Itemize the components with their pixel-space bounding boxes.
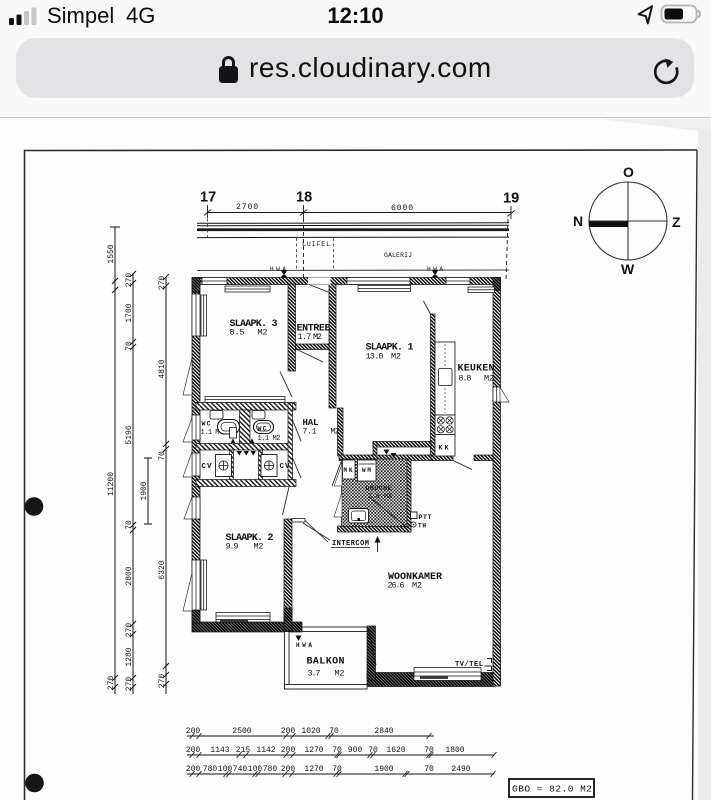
svg-text:270: 270 (125, 273, 134, 288)
svg-text:18: 18 (296, 190, 312, 206)
svg-text:WC: WC (202, 421, 211, 428)
svg-text:70: 70 (329, 727, 339, 736)
svg-text:70: 70 (368, 746, 378, 755)
svg-text:100: 100 (218, 765, 233, 774)
svg-text:270: 270 (107, 676, 116, 691)
svg-text:TV/TEL: TV/TEL (455, 661, 483, 669)
svg-text:70: 70 (158, 451, 167, 461)
svg-text:1.1 M: 1.1 M (201, 429, 220, 437)
svg-text:1270: 1270 (304, 765, 323, 774)
svg-text:1900: 1900 (374, 765, 393, 774)
svg-text:200: 200 (281, 746, 296, 755)
svg-text:5196: 5196 (125, 425, 134, 444)
svg-text:200: 200 (186, 765, 201, 774)
svg-text:1.1 M2: 1.1 M2 (258, 435, 281, 443)
svg-text:CV: CV (280, 463, 290, 471)
svg-text:70: 70 (424, 746, 434, 755)
svg-text:3.7: 3.7 (308, 669, 321, 679)
svg-text:2490: 2490 (451, 765, 470, 774)
svg-text:M2: M2 (313, 332, 322, 342)
svg-text:4810: 4810 (158, 359, 167, 378)
svg-text:DOUCHE: DOUCHE (366, 485, 392, 492)
svg-text:HWA: HWA (296, 642, 312, 649)
svg-text:1800: 1800 (445, 746, 464, 755)
svg-text:9.9: 9.9 (226, 542, 239, 552)
svg-text:70: 70 (332, 746, 342, 755)
svg-text:1620: 1620 (386, 746, 405, 755)
svg-text:2840: 2840 (374, 727, 393, 736)
svg-text:1142: 1142 (256, 746, 275, 755)
svg-text:7.1: 7.1 (303, 428, 317, 437)
svg-text:MK: MK (344, 467, 353, 474)
svg-text:M2: M2 (331, 428, 340, 437)
svg-text:N: N (573, 213, 583, 229)
svg-text:70: 70 (125, 341, 134, 351)
svg-text:26.6: 26.6 (388, 581, 405, 591)
svg-text:WM: WM (362, 467, 371, 474)
svg-text:6000: 6000 (391, 204, 413, 213)
svg-text:M2: M2 (258, 328, 268, 338)
svg-text:780: 780 (203, 765, 218, 774)
svg-text:CV: CV (202, 463, 212, 471)
svg-text:HAL: HAL (303, 418, 319, 428)
svg-text:200: 200 (281, 765, 296, 774)
svg-text:W: W (621, 261, 635, 277)
svg-text:780: 780 (263, 765, 278, 774)
svg-text:270: 270 (158, 674, 167, 689)
svg-text:1700: 1700 (125, 303, 134, 322)
svg-text:1143: 1143 (210, 746, 229, 755)
svg-text:6320: 6320 (158, 560, 167, 579)
svg-text:70: 70 (424, 765, 434, 774)
svg-text:1550: 1550 (107, 244, 116, 263)
svg-text:270: 270 (125, 677, 134, 692)
svg-text:270: 270 (158, 276, 167, 291)
svg-text:TH: TH (418, 523, 426, 530)
svg-text:1020: 1020 (301, 727, 320, 736)
svg-text:INTERCOM: INTERCOM (332, 540, 369, 548)
svg-text:8.5: 8.5 (230, 328, 245, 338)
svg-text:8.8: 8.8 (459, 374, 472, 384)
svg-text:M2: M2 (484, 374, 494, 384)
svg-text:Z: Z (672, 214, 681, 230)
svg-text:200: 200 (281, 727, 296, 736)
svg-text:900: 900 (348, 746, 363, 755)
svg-text:13.0: 13.0 (366, 352, 384, 362)
svg-text:WC: WC (258, 426, 267, 433)
svg-text:740: 740 (233, 765, 248, 774)
svg-text:2500: 2500 (232, 727, 251, 736)
svg-text:1900: 1900 (140, 481, 149, 500)
svg-text:2700: 2700 (236, 203, 258, 212)
svg-text:1280: 1280 (125, 647, 134, 666)
svg-text:70: 70 (125, 520, 134, 530)
svg-text:70: 70 (332, 765, 342, 774)
svg-text:GALERIJ: GALERIJ (384, 252, 412, 259)
svg-text:M2: M2 (254, 542, 264, 552)
svg-text:2800: 2800 (125, 566, 134, 585)
svg-text:200: 200 (186, 727, 201, 736)
svg-text:200: 200 (186, 746, 201, 755)
svg-text:GBO = 82.0 M2: GBO = 82.0 M2 (512, 784, 592, 795)
svg-text:215: 215 (236, 746, 251, 755)
svg-text:LUIFEL: LUIFEL (302, 241, 330, 248)
svg-text:M2: M2 (412, 581, 422, 591)
svg-text:M2: M2 (335, 669, 345, 679)
svg-text:BALKON: BALKON (307, 657, 345, 668)
svg-text:PTT: PTT (419, 514, 432, 521)
svg-text:11200: 11200 (107, 472, 116, 496)
svg-text:O: O (623, 164, 634, 180)
svg-text:1.7: 1.7 (298, 332, 312, 342)
svg-text:1270: 1270 (304, 746, 323, 755)
svg-text:M2: M2 (391, 352, 401, 362)
svg-text:19: 19 (503, 191, 519, 207)
svg-text:270: 270 (125, 623, 134, 638)
svg-text:17: 17 (200, 190, 216, 206)
svg-text:100: 100 (248, 765, 263, 774)
svg-text:3.8 M2: 3.8 M2 (368, 493, 392, 500)
